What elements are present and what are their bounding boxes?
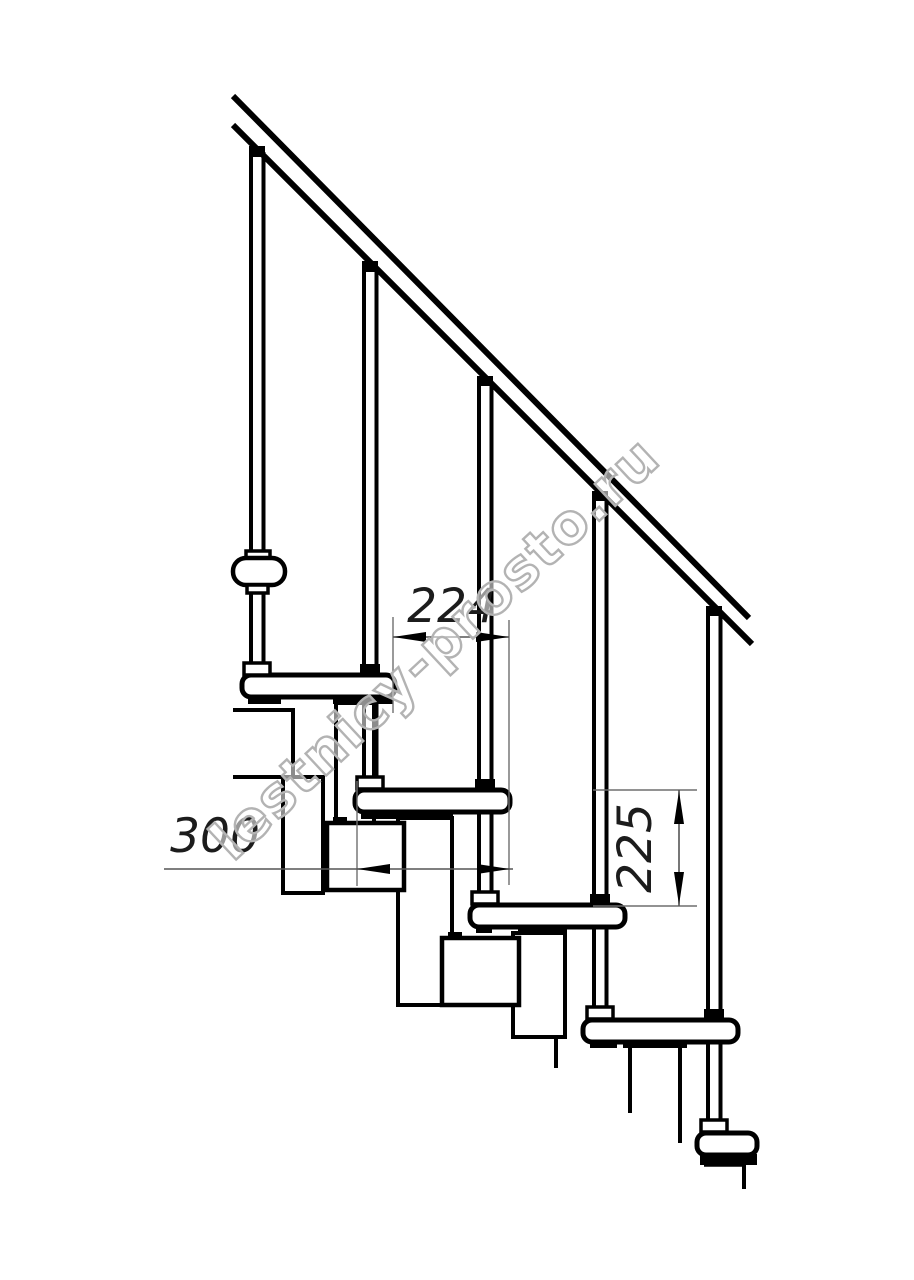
pad-under-tread-4a [590,1041,617,1048]
module-box-1-tab [333,817,347,824]
collar-baluster4-base [587,1007,613,1019]
collar-baluster1-mid [247,585,268,593]
collar-baluster5-base [701,1120,727,1132]
staircase-drawing-canvas: 224 300 225 lestnicy-prosto.ru [0,0,914,1280]
clamp-baluster5-tread4 [704,1009,724,1020]
pad-under-tread-1a [248,696,281,704]
dim-label-riser-height: 225 [608,803,663,893]
tread-5 [697,1133,757,1155]
collar-baluster2-base [357,777,383,789]
clamp-baluster4-tread3 [590,894,610,905]
collar-baluster3-base [472,892,498,904]
pad-under-tread-4b [623,1041,687,1048]
baluster-4 [594,498,607,1019]
arrowhead-225-down [674,872,684,905]
baluster-5 [708,613,721,1132]
pad-under-tread-2 [361,811,453,819]
module-box-2-tab [448,932,462,939]
pad-under-tread-3a [476,926,492,933]
rail-mount-3 [477,376,493,386]
dimension-riser-225: 225 [593,790,697,906]
tread-2 [355,790,510,812]
rail-mount-1 [249,146,265,157]
module-partial-lines [556,1037,680,1143]
staircase-technical-drawing: 224 300 225 lestnicy-prosto.ru [0,0,914,1280]
arrowhead-225-up [674,791,684,824]
rail-mount-2 [362,261,378,272]
module-box-1 [327,823,404,890]
tread-4 [583,1020,738,1042]
clamp-baluster3-tread2 [475,779,495,790]
collar-baluster1-base [244,663,270,675]
tread-3 [470,905,625,927]
rail-mount-5 [706,606,722,616]
baluster1-landing-bracket [233,558,285,585]
module-box-2 [442,938,519,1005]
baluster-1 [251,152,264,673]
pad-under-tread-3b [518,926,567,934]
